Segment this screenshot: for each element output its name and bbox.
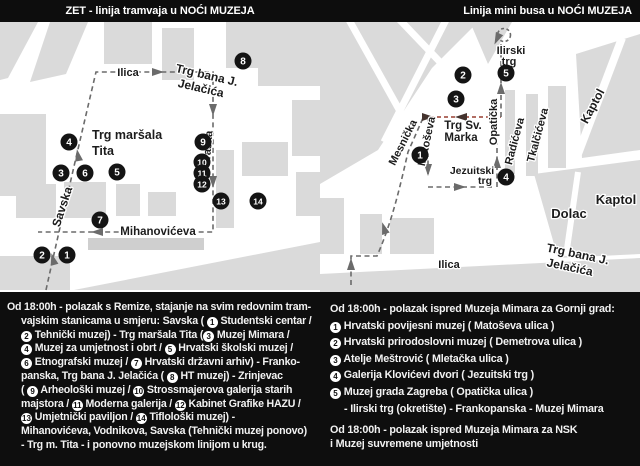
stop-number-badge: 2 xyxy=(330,338,341,349)
schedule-line: 6 Etnografski muzej / 7 Hrvatski državni… xyxy=(7,356,324,370)
street-label: trg xyxy=(478,175,492,187)
tram-schedule-text: Od 18:00h - polazak s Remize, stajanje n… xyxy=(0,292,324,466)
schedule-text-segment: Moderna galerija / xyxy=(83,398,175,410)
stop-number-badge: 6 xyxy=(21,358,32,369)
map-stop-5: 5 xyxy=(109,164,126,181)
stop-number: 7 xyxy=(97,215,103,226)
schedule-text-segment: Hrvatski školski muzej / xyxy=(176,342,293,354)
stop-number: 12 xyxy=(197,179,207,189)
street-label: Mihanovićeva xyxy=(120,226,196,238)
bus-schedule-outro-line: Od 18:00h - polazak ispred Muzeja Mimara… xyxy=(330,424,636,438)
bus-schedule-note: - Ilirski trg (okretište) - Frankopanska… xyxy=(330,401,636,418)
street-label: Kaptol xyxy=(596,192,636,207)
schedule-text-segment: Etnografski muzej / xyxy=(32,356,131,368)
bus-schedule-item-text: Galerija Klovićevi dvori ( Jezuitski trg… xyxy=(341,369,534,381)
map-stop-7: 7 xyxy=(92,212,109,229)
stop-number: 5 xyxy=(503,68,509,79)
stop-number-badge: 1 xyxy=(330,322,341,333)
schedule-line: ( 9 Arheološki muzej / 10 Strossmajerova… xyxy=(7,384,324,398)
header-tram-text: ZET - linija tramvaja u xyxy=(65,5,176,17)
stop-number: 2 xyxy=(460,70,466,81)
stop-number-badge: 4 xyxy=(21,344,32,355)
bus-schedule-intro: Od 18:00h - polazak ispred Muzeja Mimara… xyxy=(330,301,636,318)
street-label: Ilica xyxy=(438,259,460,271)
stop-number: 8 xyxy=(240,56,246,67)
stop-number-badge: 10 xyxy=(133,386,144,397)
bus-map: IlirskitrgTrg Sv.MarkaJezuitskitrgMesnič… xyxy=(320,22,640,292)
map-stop-1: 1 xyxy=(59,247,76,264)
map-stop-8: 8 xyxy=(235,53,252,70)
stop-number: 1 xyxy=(64,250,70,261)
bus-schedule-item-text: Atelje Meštrović ( Mletačka ulica ) xyxy=(341,353,509,365)
header-bar: ZET - linija tramvaja uNOĆI MUZEJA Linij… xyxy=(0,0,640,22)
header-tram-line: ZET - linija tramvaja uNOĆI MUZEJA xyxy=(0,0,320,22)
street-label: Ilica xyxy=(117,67,139,79)
schedule-text-segment: Mihanovićeva, Vodnikova, Savska (Tehničk… xyxy=(21,425,307,437)
stop-number-badge: 11 xyxy=(72,400,83,411)
schedule-text-segment: - Trg m. Tita - i ponovno muzejskom lini… xyxy=(21,439,267,451)
schedule-line: Mihanovićeva, Vodnikova, Savska (Tehničk… xyxy=(7,425,324,439)
header-bus-line: Linija mini busa uNOĆI MUZEJA xyxy=(320,0,640,22)
map-stop-14: 14 xyxy=(250,193,267,210)
bus-schedule-item: 4 Galerija Klovićevi dvori ( Jezuitski t… xyxy=(330,367,636,384)
schedule-text-segment: Muzej Mimara / xyxy=(214,329,289,341)
stop-number: 4 xyxy=(503,172,509,183)
bus-schedule-item-text: Hrvatski povijesni muzej ( Matoševa ulic… xyxy=(341,320,554,332)
map-stop-3: 3 xyxy=(53,165,70,182)
map-stop-4: 4 xyxy=(498,169,515,186)
bus-schedule-item: 3 Atelje Meštrović ( Mletačka ulica ) xyxy=(330,351,636,368)
schedule-panel: Od 18:00h - polazak s Remize, stajanje n… xyxy=(0,292,640,466)
map-stop-5: 5 xyxy=(498,65,515,82)
schedule-text-segment: Tehnički muzej) - Trg maršala Tita ( xyxy=(32,329,203,341)
stop-number-badge: 5 xyxy=(165,344,176,355)
schedule-line: 4 Muzej za umjetnost i obrt / 5 Hrvatski… xyxy=(7,342,324,356)
stop-number-badge: 12 xyxy=(175,400,186,411)
stop-number: 13 xyxy=(216,196,226,206)
schedule-line: 13 Umjetnički paviljon / 14 Tiflološki m… xyxy=(7,411,324,425)
bus-schedule-text: Od 18:00h - polazak ispred Muzeja Mimara… xyxy=(324,292,640,466)
stop-number-badge: 5 xyxy=(330,388,341,399)
stop-number: 1 xyxy=(417,150,423,161)
stop-number-badge: 3 xyxy=(203,331,214,342)
schedule-line: Od 18:00h - polazak s Remize, stajanje n… xyxy=(7,301,324,315)
schedule-text-segment: Studentski centar / xyxy=(218,315,312,327)
tram-map: IlicaTrg bana J.JelačićaTrg maršalaTitaS… xyxy=(0,22,320,292)
street-label: Dolac xyxy=(551,206,586,221)
street-label: Marka xyxy=(444,132,478,144)
header-tram-highlight: NOĆI MUZEJA xyxy=(180,5,255,17)
bus-schedule-item-text: Hrvatski prirodoslovni muzej ( Demetrova… xyxy=(341,336,582,348)
stop-number-badge: 3 xyxy=(330,355,341,366)
map-stop-2: 2 xyxy=(455,67,472,84)
stop-number: 6 xyxy=(82,168,88,179)
schedule-text-segment: majstora / xyxy=(21,398,72,410)
bus-schedule-outro-line: i Muzej suvremene umjetnosti xyxy=(330,438,636,452)
stop-number-badge: 1 xyxy=(207,317,218,328)
schedule-text-segment: Od 18:00h - polazak s Remize, stajanje n… xyxy=(7,301,311,313)
bus-schedule-item-text: Muzej grada Zagreba ( Opatička ulica ) xyxy=(341,386,533,398)
schedule-text-segment: HT muzej) - Zrinjevac xyxy=(178,370,283,382)
schedule-line: 2 Tehnički muzej) - Trg maršala Tita (3 … xyxy=(7,329,324,343)
header-bus-highlight: NOĆI MUZEJA xyxy=(557,5,632,17)
stop-number: 3 xyxy=(58,168,64,179)
schedule-line: - Trg m. Tita - i ponovno muzejskom lini… xyxy=(7,439,324,453)
schedule-text-segment: Hrvatski državni arhiv) - Franko- xyxy=(142,356,300,368)
street-label: Trg Sv. xyxy=(444,120,482,132)
street-label: Tita xyxy=(92,144,115,158)
schedule-text-segment: Tiflološki muzej) - xyxy=(147,411,235,423)
map-stop-9: 9 xyxy=(195,134,212,151)
stop-number-badge: 13 xyxy=(21,413,32,424)
stop-number-badge: 9 xyxy=(27,386,38,397)
schedule-text-segment: panska, Trg bana J. Jelačića ( xyxy=(21,370,167,382)
schedule-line: panska, Trg bana J. Jelačića ( 8 HT muze… xyxy=(7,370,324,384)
map-stop-3: 3 xyxy=(448,91,465,108)
schedule-text-segment: Arheološki muzej / xyxy=(38,384,133,396)
stop-number-badge: 8 xyxy=(167,372,178,383)
schedule-text-segment: Umjetnički paviljon / xyxy=(32,411,136,423)
stop-number-badge: 2 xyxy=(21,331,32,342)
stop-number-badge: 14 xyxy=(136,413,147,424)
bus-schedule-item: 5 Muzej grada Zagreba ( Opatička ulica ) xyxy=(330,384,636,401)
map-stop-12: 12 xyxy=(194,176,211,193)
schedule-line: vajskim stanicama u smjeru: Savska ( 1 S… xyxy=(7,315,324,329)
map-stop-4: 4 xyxy=(61,134,78,151)
header-bus-text: Linija mini busa u xyxy=(463,5,554,17)
schedule-text-segment: Kabinet Grafike HAZU / xyxy=(186,398,301,410)
bus-schedule-item: 1 Hrvatski povijesni muzej ( Matoševa ul… xyxy=(330,318,636,335)
street-label: Opatička xyxy=(488,98,500,145)
stop-number: 3 xyxy=(453,94,459,105)
bus-schedule-outro: Od 18:00h - polazak ispred Muzeja Mimara… xyxy=(330,424,636,452)
map-stop-13: 13 xyxy=(213,193,230,210)
stop-number-badge: 4 xyxy=(330,371,341,382)
stop-number-badge: 7 xyxy=(131,358,142,369)
schedule-text-segment: vajskim stanicama u smjeru: Savska ( xyxy=(21,315,207,327)
schedule-text-segment: Strossmajerova galerija starih xyxy=(144,384,292,396)
stop-number: 5 xyxy=(114,167,120,178)
street-label: Trg maršala xyxy=(92,128,163,142)
map-stop-6: 6 xyxy=(77,165,94,182)
maps-panel: IlicaTrg bana J.JelačićaTrg maršalaTitaS… xyxy=(0,22,640,292)
stop-number: 4 xyxy=(66,137,72,148)
stop-number: 14 xyxy=(253,196,263,206)
stop-number: 2 xyxy=(39,250,45,261)
bus-schedule-item: 2 Hrvatski prirodoslovni muzej ( Demetro… xyxy=(330,334,636,351)
stop-number: 9 xyxy=(200,137,206,148)
schedule-text-segment: Muzej za umjetnost i obrt / xyxy=(32,342,165,354)
map-stop-2: 2 xyxy=(34,247,51,264)
map-stop-1: 1 xyxy=(412,147,429,164)
schedule-line: majstora / 11 Moderna galerija / 12 Kabi… xyxy=(7,398,324,412)
